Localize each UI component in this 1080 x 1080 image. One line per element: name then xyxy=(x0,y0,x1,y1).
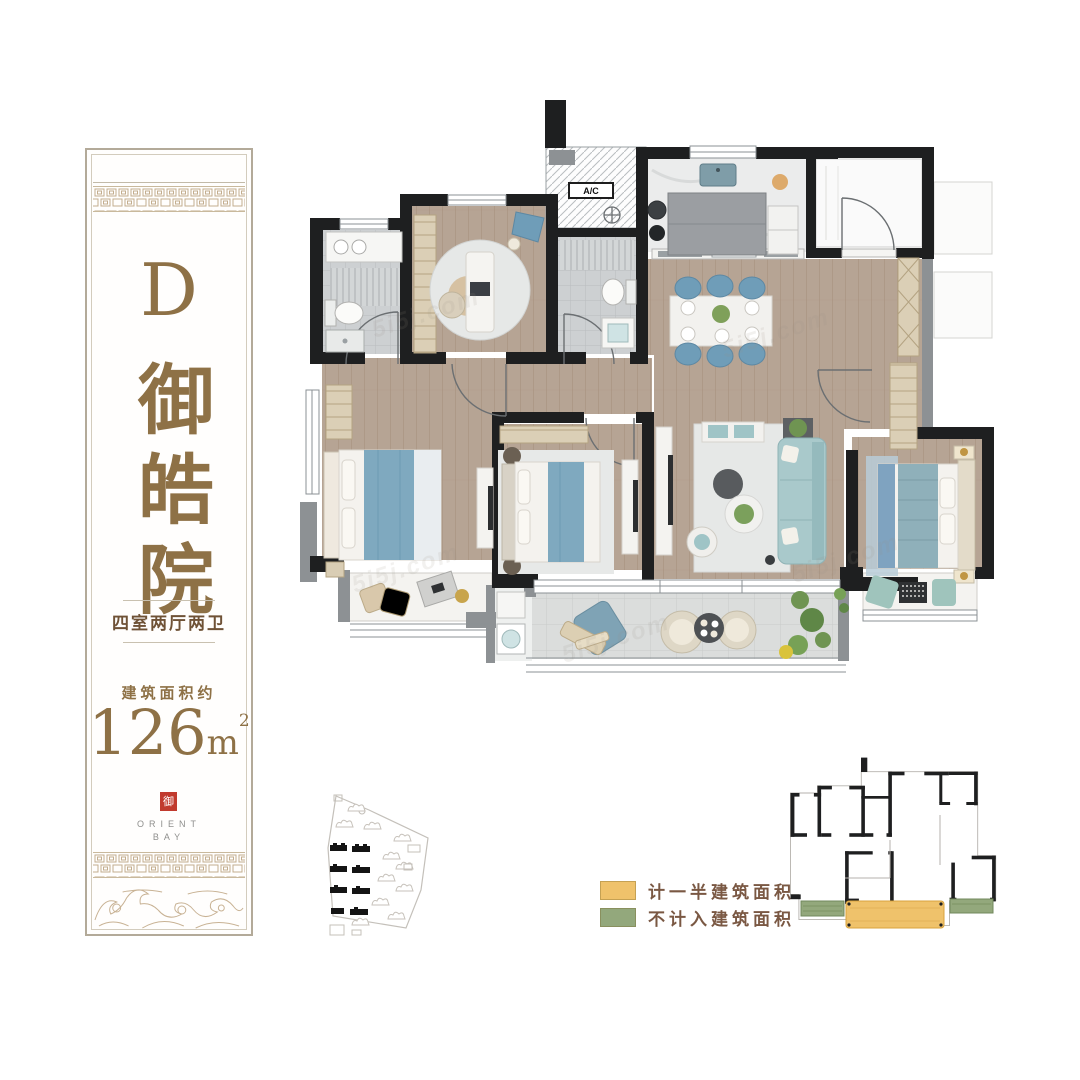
legend-item-excluded-area: 不计入建筑面积 xyxy=(600,905,795,930)
area-unit: m xyxy=(207,723,239,763)
legend-label-excluded-area: 不计入建筑面积 xyxy=(648,905,795,930)
banner-top-rule xyxy=(93,182,245,183)
layout-label: 四室两厅两卫 xyxy=(87,601,251,642)
legend-label-half-area: 计一半建筑面积 xyxy=(648,878,795,903)
floral-scroll-band xyxy=(93,886,245,930)
layout-rule-bottom xyxy=(123,642,215,643)
greek-key-band-bottom xyxy=(93,852,245,878)
unit-letter: D xyxy=(87,250,251,330)
ac-platform-label: A/C xyxy=(568,182,614,199)
unit-info-banner: D 御皓院 四室两厅两卫 建筑面积约 126m2 御 ORIENT BAY xyxy=(85,148,253,936)
area-exponent: 2 xyxy=(239,711,250,731)
floor-plan-poster: { "banner": { "unit_letter": "D", "proje… xyxy=(0,0,1080,1080)
brand-line-1: ORIENT xyxy=(87,818,251,831)
legend-swatch-half-area xyxy=(600,881,636,900)
greek-key-band-top xyxy=(93,186,245,212)
brand-line-2: BAY xyxy=(87,831,251,844)
legend-item-half-area: 计一半建筑面积 xyxy=(600,878,795,903)
brand-name: ORIENT BAY xyxy=(87,818,251,844)
area-number: 126 xyxy=(88,696,206,769)
area-value: 126m2 xyxy=(87,698,251,768)
legend-swatch-excluded-area xyxy=(600,908,636,927)
layout-label-box: 四室两厅两卫 xyxy=(87,600,251,643)
seal-icon: 御 xyxy=(160,792,177,811)
